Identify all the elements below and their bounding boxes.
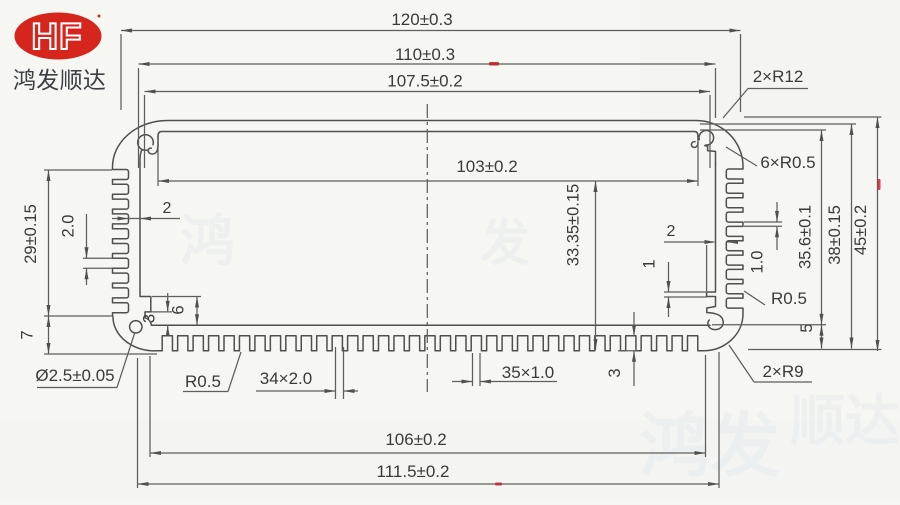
svg-text:鸿发顺达: 鸿发顺达 <box>13 67 106 93</box>
svg-text:2×R9: 2×R9 <box>762 362 803 381</box>
svg-text:111.5±0.2: 111.5±0.2 <box>377 462 450 481</box>
svg-text:2×R12: 2×R12 <box>753 67 804 86</box>
svg-text:1.0: 1.0 <box>749 251 767 274</box>
svg-text:鸿: 鸿 <box>180 210 235 272</box>
svg-text:3: 3 <box>141 314 159 323</box>
svg-text:103±0.2: 103±0.2 <box>456 157 517 176</box>
svg-text:35.6±0.1: 35.6±0.1 <box>797 205 815 269</box>
svg-text:33.35±0.15: 33.35±0.15 <box>565 184 583 266</box>
svg-text:2.0: 2.0 <box>60 215 78 238</box>
svg-text:6×R0.5: 6×R0.5 <box>760 153 815 172</box>
svg-text:顺达: 顺达 <box>790 390 900 452</box>
svg-text:2: 2 <box>667 223 676 240</box>
svg-text:R0.5: R0.5 <box>771 289 807 308</box>
svg-text:29±0.15: 29±0.15 <box>22 204 40 264</box>
svg-text:35×1.0: 35×1.0 <box>502 363 554 382</box>
svg-text:2: 2 <box>163 200 172 217</box>
svg-text:107.5±0.2: 107.5±0.2 <box>387 72 463 91</box>
svg-text:1: 1 <box>641 259 659 268</box>
svg-text:45±0.2: 45±0.2 <box>852 205 870 255</box>
svg-text:鸿发: 鸿发 <box>640 407 780 485</box>
svg-text:发: 发 <box>480 215 530 271</box>
svg-text:38±0.15: 38±0.15 <box>826 205 844 265</box>
svg-text:106±0.2: 106±0.2 <box>385 430 446 449</box>
svg-text:HF: HF <box>31 16 82 57</box>
svg-text:6: 6 <box>170 305 188 314</box>
svg-text:Ø2.5±0.05: Ø2.5±0.05 <box>35 366 114 385</box>
svg-text:34×2.0: 34×2.0 <box>260 369 312 388</box>
svg-text:3: 3 <box>606 368 624 377</box>
svg-text:120±0.3: 120±0.3 <box>391 10 452 29</box>
svg-text:110±0.3: 110±0.3 <box>395 45 455 64</box>
svg-text:R0.5: R0.5 <box>185 372 221 391</box>
svg-text:7: 7 <box>19 330 37 339</box>
